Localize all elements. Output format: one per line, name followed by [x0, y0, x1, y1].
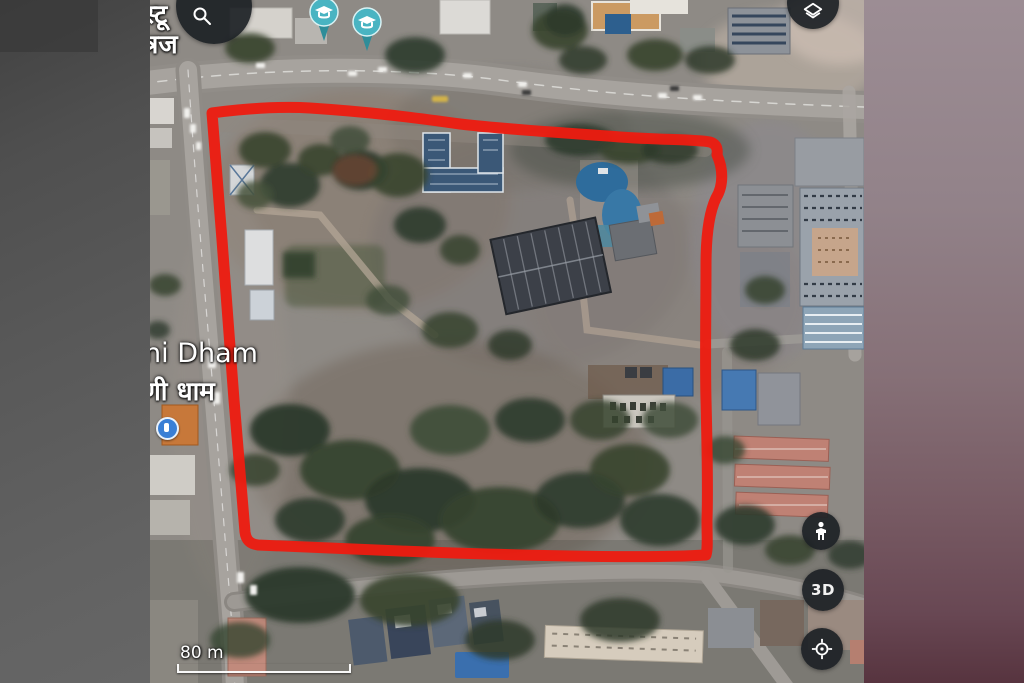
screenshot-root: { "map": { "partial_label_top_left": { "… — [0, 0, 1024, 683]
scale-bar — [177, 664, 351, 673]
my-location-icon — [811, 638, 833, 660]
place-label-hindi[interactable]: णी धाम — [150, 372, 215, 408]
blue-place-marker[interactable] — [156, 417, 179, 440]
3d-view-button[interactable]: 3D — [802, 569, 844, 611]
pegman-icon — [812, 521, 830, 541]
pegman-button[interactable] — [802, 512, 840, 550]
letterbox-corner-shade — [0, 0, 98, 52]
school-pin-icon — [351, 7, 383, 53]
layers-icon — [802, 1, 824, 23]
school-pin-icon — [308, 0, 340, 43]
partial-place-label-top-left[interactable]: स्टू त्रज — [150, 0, 178, 60]
letterbox-left — [0, 0, 150, 683]
school-pin-marker[interactable] — [351, 7, 383, 57]
3d-button-label: 3D — [811, 581, 835, 599]
map-viewport[interactable]: 3D स्टू त्रज ni Dham णी धाम 80 m — [150, 0, 864, 683]
search-icon — [192, 6, 212, 26]
partial-label-line2: त्रज — [150, 30, 178, 60]
letterbox-right — [864, 0, 1024, 683]
my-location-button[interactable] — [801, 628, 843, 670]
scale-bar-distance: 80 m — [180, 643, 224, 663]
school-pin-marker[interactable] — [308, 0, 340, 47]
partial-label-line1: स्टू — [150, 0, 178, 30]
place-label-latin[interactable]: ni Dham — [150, 338, 258, 369]
